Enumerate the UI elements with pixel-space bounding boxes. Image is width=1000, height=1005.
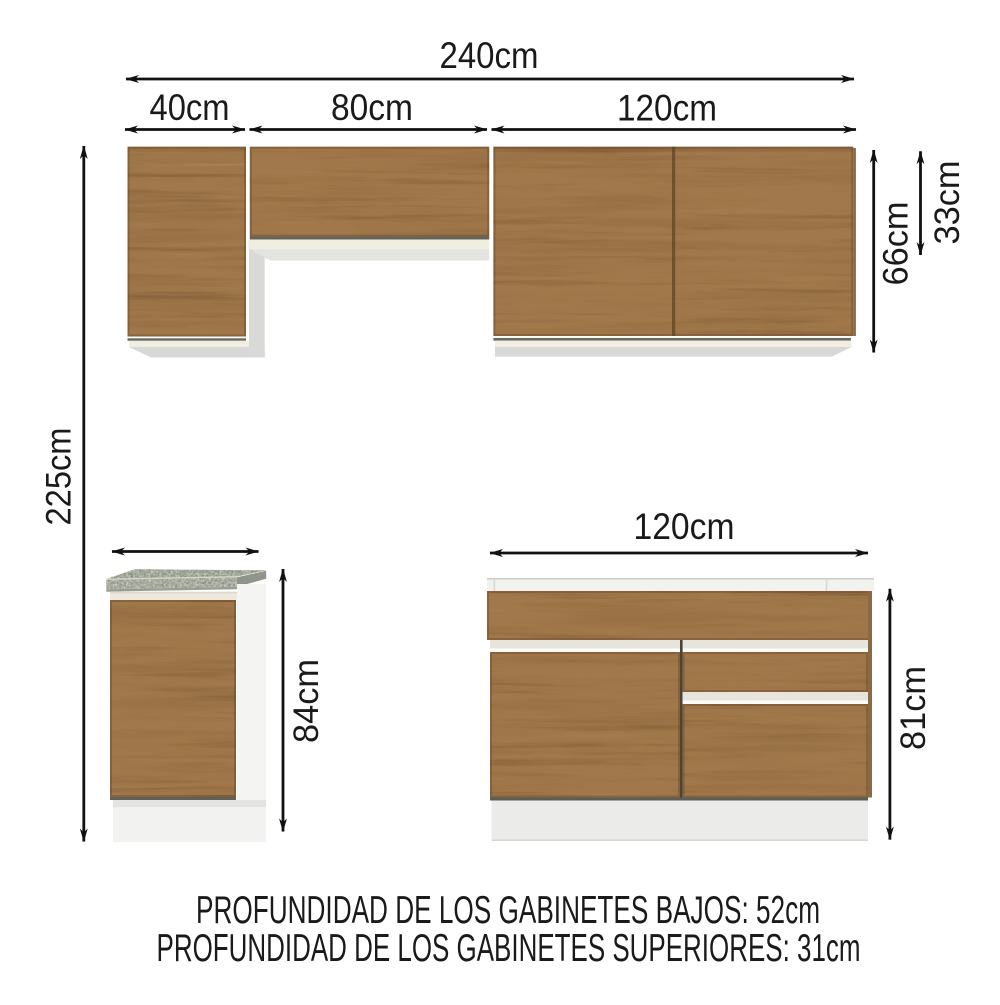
svg-text:225cm: 225cm [40, 428, 79, 526]
svg-text:240cm: 240cm [440, 35, 539, 76]
svg-text:33cm: 33cm [928, 161, 967, 245]
svg-text:120cm: 120cm [634, 506, 735, 547]
svg-text:PROFUNDIDAD DE LOS GABINETES B: PROFUNDIDAD DE LOS GABINETES BAJOS: 52cm [196, 889, 820, 932]
svg-text:120cm: 120cm [617, 88, 717, 129]
svg-text:66cm: 66cm [877, 202, 916, 286]
svg-text:81cm: 81cm [894, 666, 933, 750]
svg-text:40cm: 40cm [150, 87, 230, 128]
svg-text:80cm: 80cm [331, 87, 413, 128]
svg-text:84cm: 84cm [287, 659, 326, 743]
svg-text:PROFUNDIDAD DE LOS GABINETES S: PROFUNDIDAD DE LOS GABINETES SUPERIORES:… [157, 927, 861, 970]
